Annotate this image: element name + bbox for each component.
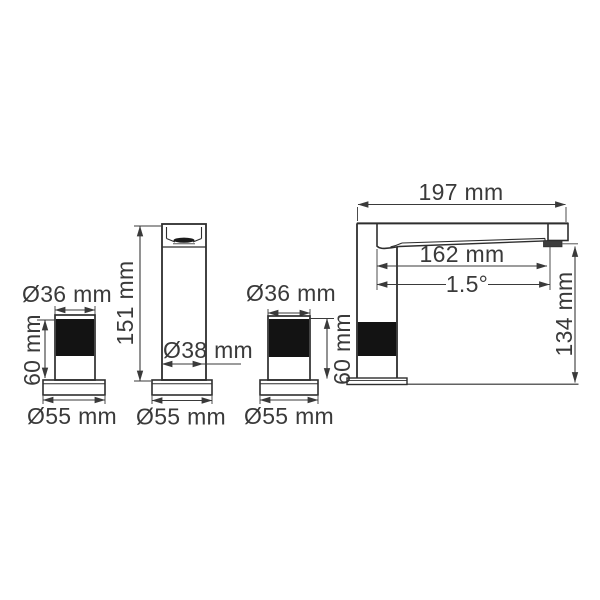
left-handle-height-label: 60 mm xyxy=(19,314,45,386)
spout-height-label: 134 mm xyxy=(551,272,577,357)
spout-front-cap xyxy=(162,227,206,247)
spout-overall-length-dimension xyxy=(358,205,567,223)
right-handle-base-diameter-label: Ø55 mm xyxy=(244,403,334,429)
left-handle-figure: Ø36 mm 60 mm Ø55 mm xyxy=(19,281,117,429)
spout-front-outlet-slot xyxy=(174,238,195,243)
spout-front-height-dimension xyxy=(134,226,161,381)
right-handle-top-diameter-label: Ø36 mm xyxy=(246,280,336,306)
left-handle-top-diameter-label: Ø36 mm xyxy=(22,281,112,307)
spout-front-body-diameter-label: Ø38 mm xyxy=(163,337,253,363)
left-handle-black-band xyxy=(56,319,94,356)
spout-front-height-label: 151 mm xyxy=(112,261,138,346)
spout-angle-label: 1.5° xyxy=(446,271,488,297)
spout-aerator xyxy=(544,241,563,247)
spout-back-curve xyxy=(377,224,399,248)
right-handle-height-label: 60 mm xyxy=(329,313,355,385)
spout-side-black-band xyxy=(358,322,396,356)
spout-side-figure: 197 mm 162 mm xyxy=(347,179,579,385)
left-handle-base xyxy=(43,380,105,395)
spout-side-base xyxy=(347,378,579,385)
spout-tip-cap xyxy=(548,223,568,240)
faucet-dimension-drawing: Ø36 mm 60 mm Ø55 mm 151 mm xyxy=(0,0,600,600)
right-handle-black-band xyxy=(269,319,309,357)
spout-overall-length-label: 197 mm xyxy=(419,179,504,205)
right-handle-figure: Ø36 mm 60 mm Ø55 mm xyxy=(244,280,355,429)
right-handle-base xyxy=(260,380,318,395)
technical-drawing-canvas: Ø36 mm 60 mm Ø55 mm 151 mm xyxy=(0,0,600,600)
spout-front-base-diameter-label: Ø55 mm xyxy=(136,404,226,430)
spout-front-base xyxy=(152,380,212,395)
left-handle-base-diameter-label: Ø55 mm xyxy=(27,403,117,429)
spout-reach-label: 162 mm xyxy=(420,241,505,267)
spout-front-figure: 151 mm Ø38 mm Ø55 mm xyxy=(112,224,253,430)
left-handle-top-diameter-dimension xyxy=(55,306,95,315)
